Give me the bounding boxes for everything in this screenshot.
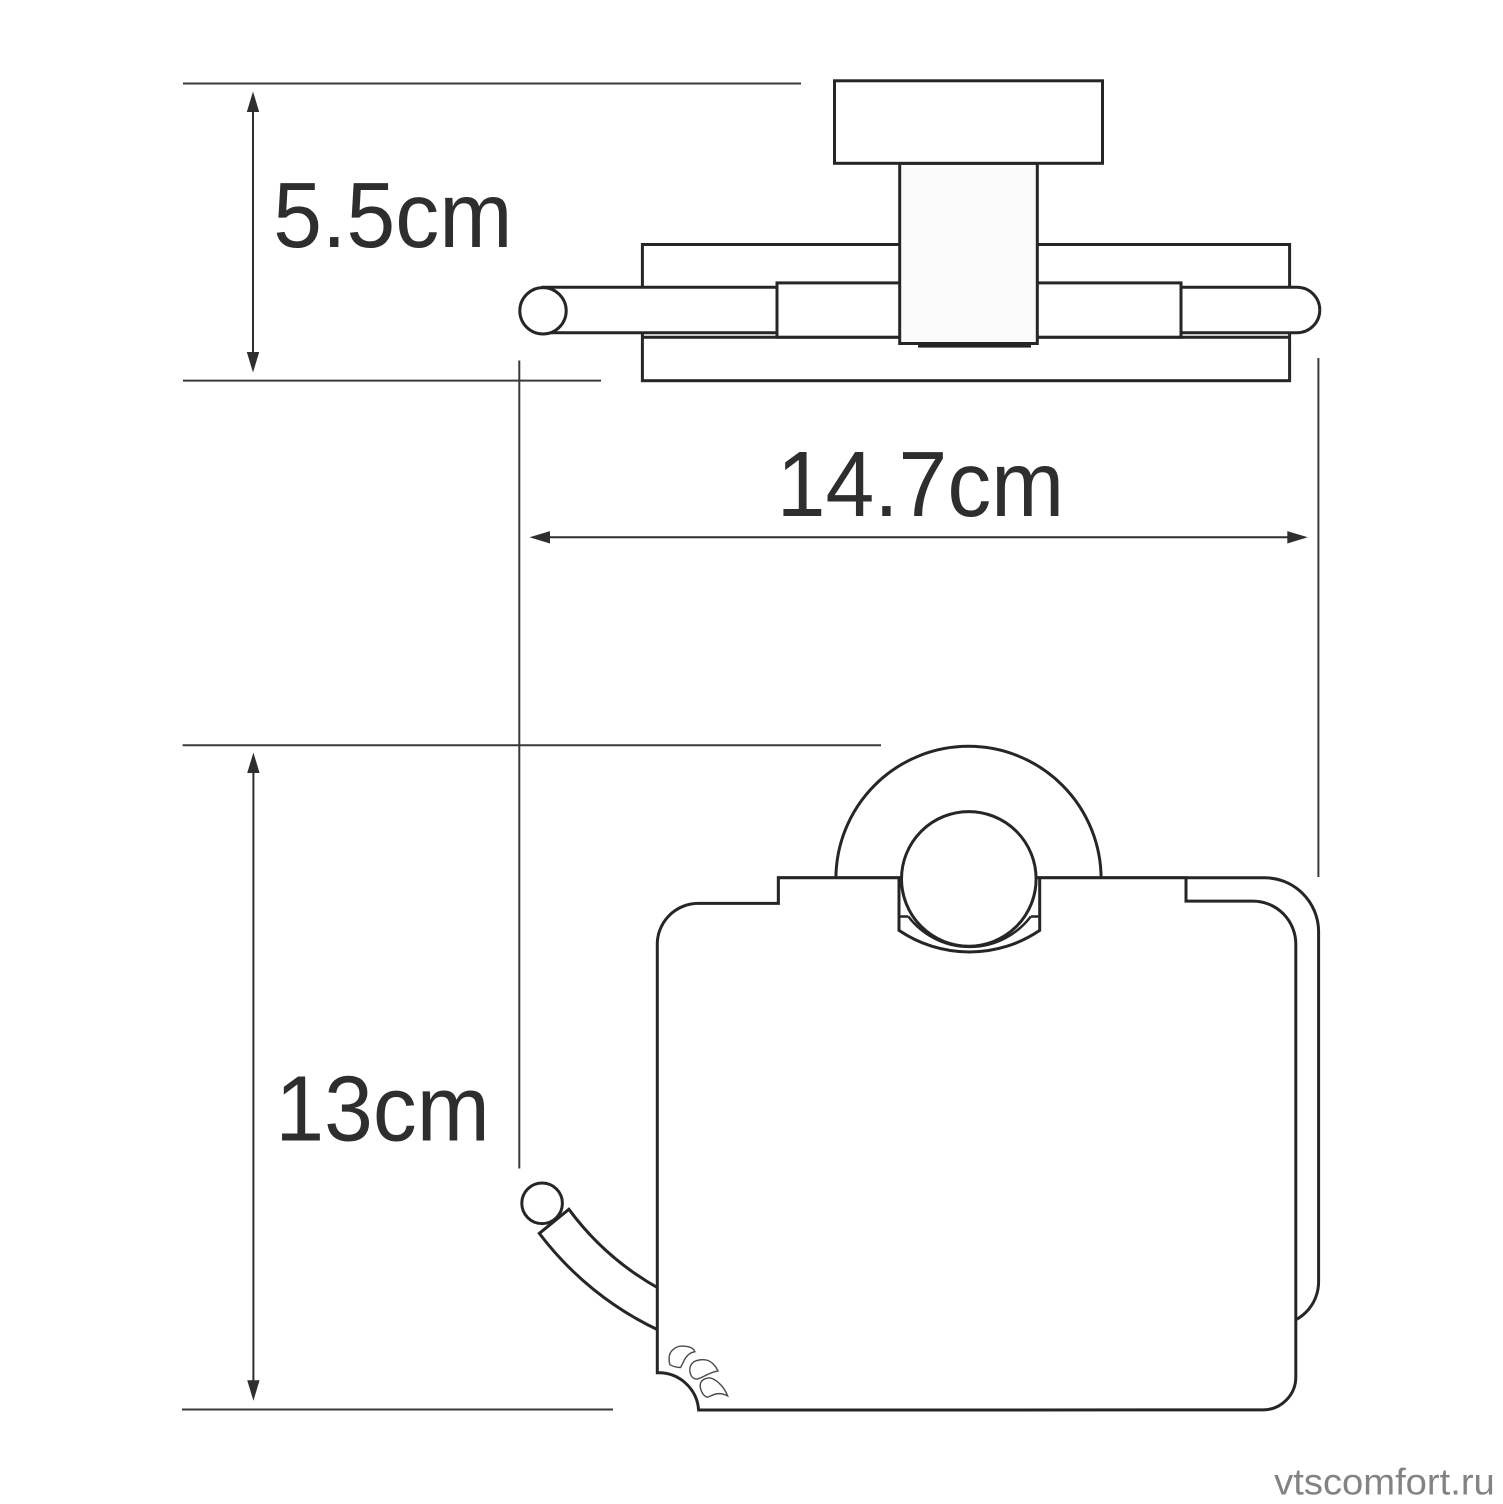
svg-text:vtscomfort.ru: vtscomfort.ru (1274, 1461, 1495, 1502)
svg-text:14.7cm: 14.7cm (777, 432, 1064, 536)
svg-text:5.5cm: 5.5cm (273, 163, 512, 267)
svg-text:13cm: 13cm (275, 1057, 489, 1161)
